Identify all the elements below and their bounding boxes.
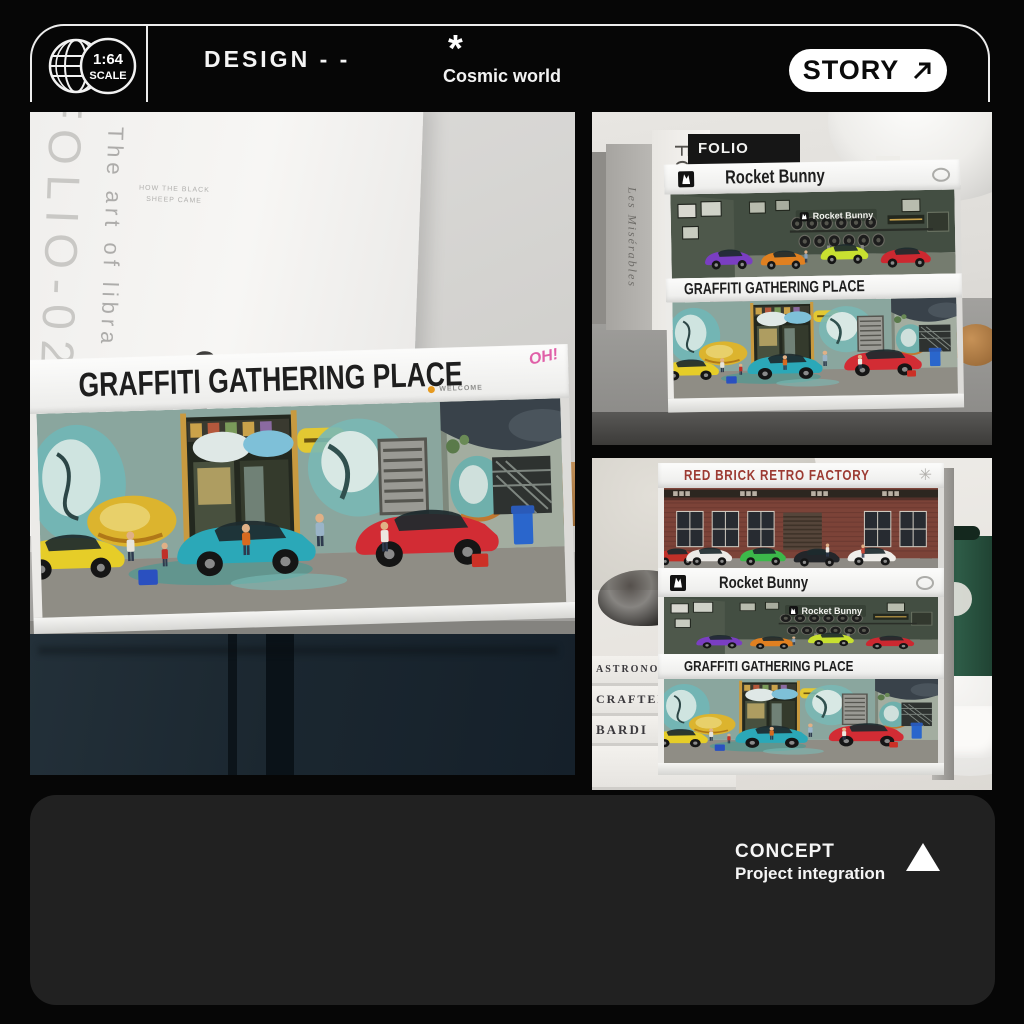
arrow-up-right-icon: [911, 60, 933, 82]
cabinet-handle: [266, 634, 294, 775]
graffiti-banner: GRAFFITI GATHERING PLACE: [658, 654, 944, 679]
design-label: DESIGN - -: [204, 46, 350, 73]
graffiti-scene: [658, 679, 944, 763]
scale-globe-icon: 1:64 SCALE: [46, 34, 140, 98]
book-spine-text: Les Misérables: [625, 187, 640, 288]
concept-title: CONCEPT: [735, 841, 835, 863]
book-spine-text: FOLIO-02: [30, 112, 94, 376]
rocket-bunny-banner: Rocket Bunny: [658, 568, 944, 597]
graffiti-scene: [666, 297, 964, 398]
brick-factory-scene: [658, 488, 944, 568]
garage-scene: Rocket Bunny: [658, 597, 944, 654]
banner-title: RED BRICK RETRO FACTORY: [684, 467, 870, 484]
header-divider: [146, 24, 148, 102]
photo-main-diorama: FOLIO-02 The art of libra HOW THE BLACK …: [30, 112, 575, 775]
maker-mark-icon: [932, 168, 950, 182]
starburst-icon: ✳: [919, 468, 932, 484]
story-button[interactable]: STORY: [789, 49, 947, 92]
desk-front: [592, 412, 992, 445]
garage-scene: Rocket Bunny: [664, 189, 961, 278]
banner-title: GRAFFITI GATHERING PLACE: [78, 355, 463, 405]
cabinet-front: [30, 634, 575, 775]
welcome-label: WELCOME: [428, 385, 483, 394]
svg-text:SCALE: SCALE: [89, 70, 126, 82]
asterisk-mark: *: [448, 30, 463, 68]
book-les-miserables: Les Misérables: [606, 144, 658, 330]
story-button-label: STORY: [803, 55, 900, 86]
graffiti-scene: [30, 398, 575, 618]
cabinet-seam: [228, 634, 237, 775]
svg-text:1:64: 1:64: [93, 51, 124, 68]
rocket-bunny-logo-icon: [670, 575, 686, 591]
brand-logo: OH!: [527, 346, 559, 370]
interior-sign: Rocket Bunny: [785, 605, 867, 617]
banner-title: GRAFFITI GATHERING PLACE: [684, 278, 865, 299]
photo-tower-dioramas: ASTRONOMER CRAFTED BARDI RED BRICK RETRO…: [592, 458, 992, 790]
diorama-graffiti-main: GRAFFITI GATHERING PLACE WELCOME OH!: [30, 344, 575, 650]
rocket-bunny-logo-icon: [800, 212, 809, 221]
poster-canvas: 1:64 SCALE DESIGN - - * Cosmic world STO…: [0, 0, 1024, 1024]
concept-panel: CONCEPT Project integration: [30, 795, 995, 1005]
banner-title: Rocket Bunny: [719, 573, 808, 593]
diorama-base: [658, 763, 944, 775]
book-note-text: HOW THE BLACK SHEEP CAME: [135, 182, 214, 207]
welcome-dot-icon: [428, 386, 435, 393]
diorama-stack: Rocket Bunny Rocket Bunny GRAFFITI GATHE…: [664, 159, 964, 412]
triangle-icon: [906, 843, 940, 871]
cosmic-world-label: Cosmic world: [443, 66, 561, 87]
rocket-bunny-logo-icon: [678, 171, 694, 187]
book-side-text: The art of libra: [95, 126, 129, 349]
rocket-bunny-logo-icon: [789, 606, 798, 615]
banner-title: Rocket Bunny: [725, 166, 825, 190]
banner-title: GRAFFITI GATHERING PLACE: [684, 658, 853, 675]
photo-stacked-dioramas: Les Misérables FOLIO-02 FOLIO Rocket Bun…: [592, 112, 992, 445]
concept-subtitle: Project integration: [735, 864, 885, 884]
maker-mark-icon: [916, 576, 934, 590]
red-brick-banner: RED BRICK RETRO FACTORY ✳: [658, 463, 944, 488]
diorama-tower: RED BRICK RETRO FACTORY ✳ Rocket Bunny R…: [658, 463, 944, 783]
interior-sign: Rocket Bunny: [796, 209, 878, 222]
